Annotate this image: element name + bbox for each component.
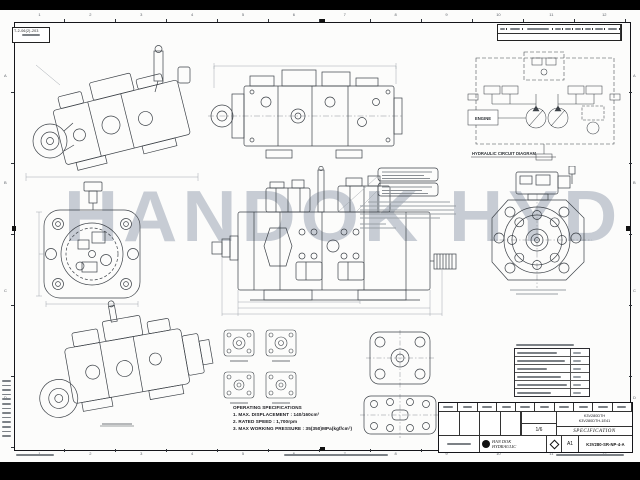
mounting-flange-view [364, 330, 440, 392]
view-bottom-isometric [16, 300, 218, 434]
view-top-plan [206, 58, 404, 170]
view-top-left-isometric [16, 45, 208, 187]
footer-micro-center [284, 454, 388, 456]
projection-symbol-cell [547, 436, 562, 452]
company-cell: HAN DOK HYDRAULIC [480, 436, 547, 452]
parts-table-header-micro [516, 344, 574, 346]
drawing-number: K3V280-SR-NP-4-A [579, 436, 632, 452]
drawing-sheet: 123456789101112 123456789101112 ABCD ABC… [0, 10, 640, 462]
title-block-misc-cell [439, 436, 480, 452]
grid-ref-label: 3 [140, 12, 142, 17]
circuit-caption: HYDRAULIC CIRCUIT DIAGRAM [472, 151, 536, 156]
grid-ref-label: 7 [344, 12, 346, 17]
view-section-main [210, 166, 462, 330]
grid-ref-label: B [4, 180, 7, 185]
stamp-code: T-2-06(2)-203 [14, 29, 48, 33]
sheet-size: A1 [562, 436, 579, 452]
screenshot-root: 123456789101112 123456789101112 ABCD ABC… [0, 0, 640, 480]
frame-ticks-right [629, 22, 632, 451]
grid-ref-label: 10 [496, 12, 500, 17]
operating-specs-line: 2. RATED SPEED : 1,700rpm [233, 418, 393, 425]
grid-ref-label: 4 [191, 12, 193, 17]
grid-ref-label: C [4, 288, 7, 293]
part-code-box: K3V280DTH K3V280DTH-1E41 [557, 412, 632, 427]
operating-specs-line: 1. MAX. DISPLACEMENT : 140/160cm³ [233, 411, 393, 418]
revision-table [497, 24, 622, 41]
title-block-header-row [439, 403, 632, 412]
grid-ref-label: 5 [242, 451, 244, 456]
diamond-icon [549, 439, 559, 449]
frame-mid-mark-top [320, 19, 325, 23]
rear-caption-micro-text [510, 290, 566, 294]
specification-label: SPECIFICATION [557, 427, 632, 435]
grid-ref-label: 8 [394, 12, 396, 17]
grid-ref-label: B [633, 180, 636, 185]
grid-ref-label: 4 [191, 451, 193, 456]
port-detail-views [222, 328, 304, 412]
view-rear [490, 166, 604, 306]
scale-cell-upper [522, 412, 556, 424]
grid-ref-label: 12 [602, 12, 606, 17]
part-code-line2: K3V280DTH-1E41 [579, 419, 610, 424]
footer-micro-right [556, 454, 624, 456]
company-name-line2: HYDRAULIC [492, 444, 516, 449]
grid-ref-letters-right: ABCD [633, 22, 636, 451]
hydraulic-circuit-diagram: ENGINE HYDRAULIC CIRCUIT DIAGRAM [464, 48, 626, 168]
stamp-subtext [22, 34, 40, 36]
signature-cells [439, 412, 522, 435]
grid-ref-label: 2 [89, 12, 91, 17]
grid-ref-label: 2 [89, 451, 91, 456]
grid-ref-label: 8 [394, 451, 396, 456]
stamp-box: T-2-06(2)-203 [12, 27, 50, 43]
grid-ref-label: 6 [293, 12, 295, 17]
grid-ref-label: 9 [445, 12, 447, 17]
port-detail-captions [230, 361, 290, 403]
grid-ref-label: 3 [140, 451, 142, 456]
grid-ref-label: A [4, 73, 7, 78]
parts-table [514, 344, 590, 397]
grid-ref-label: A [633, 73, 636, 78]
grid-ref-label: 1 [38, 12, 40, 17]
view-front [36, 180, 156, 310]
company-logo-icon [482, 440, 490, 448]
footer-micro-left [16, 454, 54, 456]
left-edge-micro-labels [2, 380, 12, 440]
operating-specs: OPERATING SPECIFICATIONS 1. MAX. DISPLAC… [233, 404, 393, 432]
grid-ref-label: C [633, 288, 636, 293]
grid-ref-numbers-top: 123456789101112 [14, 12, 631, 17]
engine-label: ENGINE [475, 116, 491, 121]
operating-specs-title: OPERATING SPECIFICATIONS [233, 404, 393, 411]
title-block: 1/6 K3V280DTH K3V280DTH-1E41 SPECIFICATI… [438, 402, 633, 453]
notes-micro-text [360, 202, 456, 228]
frame-mid-mark-bottom [320, 447, 325, 451]
grid-ref-label: 5 [242, 12, 244, 17]
frame-mid-mark-right [626, 226, 630, 231]
grid-ref-label: D [633, 395, 636, 400]
operating-specs-line: 3. MAX WORKING PRESSURE : 35(350)MPa(kgf… [233, 425, 393, 432]
scale-value: 1/6 [522, 424, 556, 435]
grid-ref-label: 11 [549, 12, 553, 17]
frame-mid-mark-left [12, 226, 16, 231]
